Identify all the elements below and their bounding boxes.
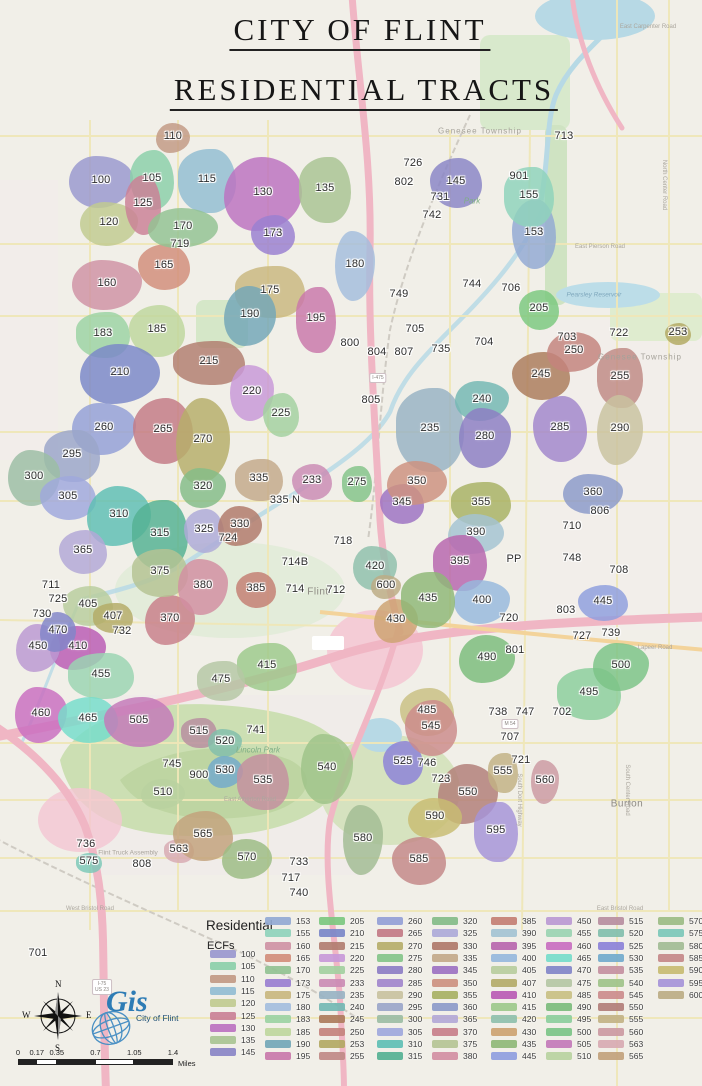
- tract-label-380: 380: [194, 579, 213, 591]
- legend-swatch-265: [377, 929, 403, 937]
- tract-label-275: 275: [348, 476, 367, 488]
- tract-label-460: 460: [32, 707, 51, 719]
- legend-value-255: 255: [350, 1051, 364, 1061]
- tract-label-285: 285: [551, 421, 570, 433]
- tract-label-PP: PP: [506, 553, 521, 565]
- tract-label-701: 701: [29, 947, 48, 959]
- tract-label-570: 570: [238, 851, 257, 863]
- compass-w: W: [22, 1010, 31, 1020]
- tract-label-722: 722: [610, 327, 629, 339]
- legend-swatch-125: [210, 1012, 236, 1020]
- tract-label-747: 747: [516, 706, 535, 718]
- legend-swatch-563: [598, 1040, 624, 1048]
- tract-label-585: 585: [410, 853, 429, 865]
- legend-value-575: 575: [689, 928, 702, 938]
- basemap-label-east-bristol-road: East Bristol Road: [597, 906, 643, 912]
- legend-value-130: 130: [241, 1023, 255, 1033]
- tract-label-807: 807: [395, 346, 414, 358]
- legend-swatch-183: [265, 1015, 291, 1023]
- tract-label-710: 710: [563, 520, 582, 532]
- tract-label-731: 731: [431, 191, 450, 203]
- tract-label-160: 160: [98, 277, 117, 289]
- tract-label-270: 270: [194, 433, 213, 445]
- legend-swatch-505: [546, 1040, 572, 1048]
- legend-value-400: 400: [522, 953, 536, 963]
- legend-value-185: 185: [296, 1027, 310, 1037]
- legend-swatch-260: [377, 917, 403, 925]
- tract-label-535: 535: [254, 774, 273, 786]
- tract-label-530: 530: [216, 764, 235, 776]
- tract-label-705: 705: [406, 323, 425, 335]
- legend-value-345: 345: [463, 965, 477, 975]
- tract-label-738: 738: [489, 706, 508, 718]
- gis-logo: Gis City of Flint: [88, 985, 208, 1055]
- tract-label-745: 745: [163, 758, 182, 770]
- legend-swatch-470: [546, 966, 572, 974]
- tract-label-155: 155: [520, 189, 539, 201]
- tract-label-350: 350: [408, 475, 427, 487]
- legend-value-135: 135: [241, 1035, 255, 1045]
- legend-swatch-555: [598, 1015, 624, 1023]
- legend-swatch-415: [491, 1003, 517, 1011]
- legend-value-270: 270: [408, 941, 422, 951]
- tract-label-707: 707: [501, 731, 520, 743]
- tract-label-250: 250: [565, 344, 584, 356]
- legend-swatch-540: [598, 979, 624, 987]
- legend-value-290: 290: [408, 990, 422, 1000]
- legend-swatch-530: [598, 954, 624, 962]
- basemap-label-genesee-township: Genesee Township: [598, 353, 682, 362]
- legend-value-545: 545: [629, 990, 643, 1000]
- legend-swatch-490: [546, 1003, 572, 1011]
- legend-swatch-205: [319, 917, 345, 925]
- tract-label-135: 135: [316, 182, 335, 194]
- tract-label-253: 253: [669, 326, 688, 338]
- basemap-label-flint: Flint: [307, 587, 328, 598]
- legend-swatch-525: [598, 942, 624, 950]
- basemap-label-park: Park: [464, 197, 480, 206]
- basemap-label-lapeer-road: Lapeer Road: [638, 645, 673, 651]
- legend-value-330: 330: [463, 941, 477, 951]
- tract-label-749: 749: [390, 288, 409, 300]
- legend-value-160: 160: [296, 941, 310, 951]
- legend-swatch-100: [210, 950, 236, 958]
- legend-swatch-225: [319, 966, 345, 974]
- tract-label-525: 525: [394, 755, 413, 767]
- map-title-line1: CITY OF FLINT: [229, 12, 490, 51]
- tract-label-717: 717: [282, 872, 301, 884]
- tract-label-170: 170: [174, 220, 193, 232]
- legend-value-370: 370: [463, 1027, 477, 1037]
- tract-label-736: 736: [77, 838, 96, 850]
- legend-value-100: 100: [241, 949, 255, 959]
- legend-swatch-170: [265, 966, 291, 974]
- legend-swatch-420: [491, 1015, 517, 1023]
- legend-swatch-350: [432, 979, 458, 987]
- legend-swatch-450: [546, 917, 572, 925]
- tract-label-240: 240: [473, 393, 492, 405]
- legend-swatch-153: [265, 917, 291, 925]
- tract-label-711: 711: [42, 579, 60, 591]
- legend-swatch-250: [319, 1028, 345, 1036]
- tract-label-325: 325: [195, 523, 214, 535]
- legend-value-455: 455: [577, 928, 591, 938]
- tract-label-290: 290: [611, 422, 630, 434]
- tract-label-235: 235: [421, 422, 440, 434]
- legend-value-153: 153: [296, 916, 310, 926]
- legend-swatch-320: [432, 917, 458, 925]
- legend-value-465: 465: [577, 953, 591, 963]
- basemap-label-east-pierson-road: East Pierson Road: [575, 244, 625, 250]
- tract-label-345: 345: [393, 496, 412, 508]
- legend-value-490: 490: [577, 1002, 591, 1012]
- legend-value-325: 325: [463, 928, 477, 938]
- legend-value-555: 555: [629, 1014, 643, 1024]
- tract-label-385: 385: [247, 582, 266, 594]
- tract-label-730: 730: [33, 608, 52, 620]
- basemap-label-east-carpenter-road: East Carpenter Road: [620, 24, 676, 30]
- legend-swatch-485: [546, 991, 572, 999]
- tract-label-520: 520: [216, 735, 235, 747]
- legend-value-190: 190: [296, 1039, 310, 1049]
- tract-label-395: 395: [451, 555, 470, 567]
- legend-value-560: 560: [629, 1027, 643, 1037]
- tract-label-575: 575: [80, 855, 99, 867]
- legend-swatch-130: [210, 1024, 236, 1032]
- legend-swatch-600: [658, 991, 684, 999]
- tract-label-495: 495: [580, 686, 599, 698]
- tract-label-375: 375: [151, 565, 170, 577]
- legend-value-295: 295: [408, 1002, 422, 1012]
- tract-label-470: 470: [49, 624, 68, 636]
- map-title-line2: RESIDENTIAL TRACTS: [170, 72, 558, 111]
- tract-label-590: 590: [426, 810, 445, 822]
- legend-swatch-325: [432, 929, 458, 937]
- tract-label-100: 100: [92, 174, 111, 186]
- tract-label-300: 300: [25, 470, 44, 482]
- legend-value-515: 515: [629, 916, 643, 926]
- legend-value-260: 260: [408, 916, 422, 926]
- basemap-label-lincoln-park: Lincoln Park: [236, 746, 280, 755]
- legend-value-390: 390: [522, 928, 536, 938]
- legend-swatch-520: [598, 929, 624, 937]
- legend-swatch-355: [432, 991, 458, 999]
- legend-value-105: 105: [241, 961, 255, 971]
- legend-value-265: 265: [408, 928, 422, 938]
- tract-label-727: 727: [573, 630, 592, 642]
- tract-label-400: 400: [473, 594, 492, 606]
- legend-swatch-270: [377, 942, 403, 950]
- legend-value-410: 410: [522, 990, 536, 1000]
- legend-value-435: 435: [522, 1039, 536, 1049]
- tract-label-335-N: 335 N: [270, 494, 300, 506]
- gis-logo-name: City of Flint: [136, 1013, 179, 1023]
- scale-segment: [18, 1059, 37, 1065]
- legend-swatch-210: [319, 929, 345, 937]
- legend-value-415: 415: [522, 1002, 536, 1012]
- basemap-label-east-atherton-road: East Atherton Road: [224, 797, 276, 803]
- legend-header: Residential: [206, 918, 273, 933]
- legend-value-365: 365: [463, 1014, 477, 1024]
- legend-swatch-345: [432, 966, 458, 974]
- tract-label-515: 515: [190, 725, 209, 737]
- legend-swatch-165: [265, 954, 291, 962]
- legend-swatch-495: [546, 1015, 572, 1023]
- tract-label-808: 808: [133, 858, 152, 870]
- tract-label-801: 801: [506, 644, 525, 656]
- legend-swatch-235: [319, 991, 345, 999]
- tract-label-540: 540: [318, 761, 337, 773]
- legend-value-360: 360: [463, 1002, 477, 1012]
- legend-value-310: 310: [408, 1039, 422, 1049]
- tract-label-800: 800: [341, 337, 360, 349]
- legend-value-315: 315: [408, 1051, 422, 1061]
- tract-label-723: 723: [432, 773, 451, 785]
- legend-value-570: 570: [689, 916, 702, 926]
- legend-value-145: 145: [241, 1047, 255, 1057]
- legend-swatch-375: [432, 1040, 458, 1048]
- tract-label-565: 565: [194, 828, 213, 840]
- legend-value-125: 125: [241, 1011, 255, 1021]
- legend-swatch-500: [546, 1028, 572, 1036]
- legend-value-563: 563: [629, 1039, 643, 1049]
- legend-swatch-380: [432, 1052, 458, 1060]
- basemap-label-north-center-road: North Center Road: [661, 160, 667, 210]
- tract-label-255: 255: [611, 370, 630, 382]
- tract-label-739: 739: [602, 627, 621, 639]
- tract-label-555: 555: [494, 765, 513, 777]
- tract-label-802: 802: [395, 176, 414, 188]
- map-canvas: 1001051101151201251301351451531551601651…: [0, 0, 702, 1086]
- tract-label-455: 455: [92, 668, 111, 680]
- legend-value-550: 550: [629, 1002, 643, 1012]
- legend-value-350: 350: [463, 978, 477, 988]
- legend-value-385: 385: [522, 916, 536, 926]
- legend-value-470: 470: [577, 965, 591, 975]
- tract-label-714: 714: [286, 583, 305, 595]
- legend-value-407: 407: [522, 978, 536, 988]
- tract-label-580: 580: [354, 832, 373, 844]
- tract-label-130: 130: [254, 186, 273, 198]
- legend-swatch-245: [319, 1015, 345, 1023]
- legend-swatch-135: [210, 1036, 236, 1044]
- legend-value-420: 420: [522, 1014, 536, 1024]
- basemap-label-south-dort-highway: South Dort Highway: [516, 773, 522, 826]
- tract-label-706: 706: [502, 282, 521, 294]
- tract-label-450: 450: [29, 640, 48, 652]
- legend-value-205: 205: [350, 916, 364, 926]
- tract-label-265: 265: [154, 423, 173, 435]
- legend-value-250: 250: [350, 1027, 364, 1037]
- legend-swatch-455: [546, 929, 572, 937]
- legend-swatch-400: [491, 954, 517, 962]
- legend-value-300: 300: [408, 1014, 422, 1024]
- legend-value-395: 395: [522, 941, 536, 951]
- legend-value-510: 510: [577, 1051, 591, 1061]
- legend-swatch-300: [377, 1015, 403, 1023]
- tract-label-804: 804: [368, 346, 387, 358]
- tract-label-702: 702: [553, 706, 572, 718]
- legend-value-110: 110: [241, 974, 255, 984]
- scale-tick-0.17: 0.17: [29, 1048, 44, 1057]
- legend-swatch-155: [265, 929, 291, 937]
- scale-segment: [96, 1059, 135, 1065]
- legend-value-120: 120: [241, 998, 255, 1008]
- legend-value-233: 233: [350, 978, 364, 988]
- legend-value-460: 460: [577, 941, 591, 951]
- legend-swatch-185: [265, 1028, 291, 1036]
- legend-swatch-560: [598, 1028, 624, 1036]
- basemap-label-flint-truck-assembly: Flint Truck Assembly: [98, 850, 158, 857]
- blank-label-box: [312, 636, 344, 650]
- tract-label-740: 740: [290, 887, 309, 899]
- legend-swatch-395: [491, 942, 517, 950]
- tract-label-310: 310: [110, 508, 129, 520]
- tract-label-805: 805: [362, 394, 381, 406]
- legend-value-585: 585: [689, 953, 702, 963]
- legend-value-535: 535: [629, 965, 643, 975]
- route-shield-m-54: M 54: [501, 719, 518, 729]
- tract-label-180: 180: [346, 258, 365, 270]
- tract-label-490: 490: [478, 651, 497, 663]
- tract-label-742: 742: [423, 209, 442, 221]
- legend-swatch-575: [658, 929, 684, 937]
- tract-label-315: 315: [151, 527, 170, 539]
- legend-value-180: 180: [296, 1002, 310, 1012]
- scale-segment: [57, 1059, 96, 1065]
- legend-value-595: 595: [689, 978, 702, 988]
- legend-value-495: 495: [577, 1014, 591, 1024]
- legend-swatch-510: [546, 1052, 572, 1060]
- tract-label-190: 190: [241, 308, 260, 320]
- legend-swatch-535: [598, 966, 624, 974]
- tract-label-330: 330: [231, 518, 250, 530]
- legend-value-485: 485: [577, 990, 591, 1000]
- legend-swatch-253: [319, 1040, 345, 1048]
- tract-label-803: 803: [557, 604, 576, 616]
- legend-swatch-290: [377, 991, 403, 999]
- legend-swatch-545: [598, 991, 624, 999]
- tract-label-735: 735: [432, 343, 451, 355]
- legend-swatch-233: [319, 979, 345, 987]
- tract-label-365: 365: [74, 544, 93, 556]
- legend-value-170: 170: [296, 965, 310, 975]
- tract-label-280: 280: [476, 430, 495, 442]
- tract-label-712: 712: [327, 584, 346, 596]
- legend-swatch-105: [210, 962, 236, 970]
- legend-value-175: 175: [296, 990, 310, 1000]
- tract-label-714B: 714B: [282, 556, 309, 568]
- legend-swatch-240: [319, 1003, 345, 1011]
- tract-label-430: 430: [387, 613, 406, 625]
- legend-swatch-280: [377, 966, 403, 974]
- scale-tick-0: 0: [16, 1048, 20, 1057]
- legend-swatch-585: [658, 954, 684, 962]
- tract-label-295: 295: [63, 448, 82, 460]
- tract-label-475: 475: [212, 673, 231, 685]
- scale-tick-0.35: 0.35: [49, 1048, 64, 1057]
- legend-swatch-465: [546, 954, 572, 962]
- legend-swatch-445: [491, 1052, 517, 1060]
- legend-swatch-515: [598, 917, 624, 925]
- tract-label-175: 175: [261, 284, 280, 296]
- legend-value-155: 155: [296, 928, 310, 938]
- legend-swatch-335: [432, 954, 458, 962]
- tract-label-704: 704: [475, 336, 494, 348]
- legend-value-600: 600: [689, 990, 702, 1000]
- legend-swatch-390: [491, 929, 517, 937]
- scale-unit: Miles: [178, 1059, 196, 1068]
- tract-label-720: 720: [500, 612, 519, 624]
- legend-swatch-160: [265, 942, 291, 950]
- legend-value-225: 225: [350, 965, 364, 975]
- legend-value-375: 375: [463, 1039, 477, 1049]
- legend-swatch-595: [658, 979, 684, 987]
- tract-label-900: 900: [190, 769, 209, 781]
- tract-label-110: 110: [164, 130, 182, 142]
- legend-value-445: 445: [522, 1051, 536, 1061]
- compass-n: N: [55, 979, 62, 989]
- legend-swatch-215: [319, 942, 345, 950]
- tract-label-746: 746: [418, 757, 437, 769]
- tract-label-703: 703: [558, 331, 577, 343]
- legend-value-475: 475: [577, 978, 591, 988]
- tract-label-225: 225: [272, 407, 291, 419]
- legend-swatch-115: [210, 987, 236, 995]
- legend-swatch-570: [658, 917, 684, 925]
- tract-label-724: 724: [219, 532, 238, 544]
- tract-label-320: 320: [194, 480, 213, 492]
- legend-swatch-565: [598, 1052, 624, 1060]
- legend-value-530: 530: [629, 953, 643, 963]
- tract-label-741: 741: [247, 724, 266, 736]
- route-shield-i-475: I-475: [369, 373, 386, 383]
- legend-value-355: 355: [463, 990, 477, 1000]
- tract-label-173: 173: [264, 227, 283, 239]
- legend-value-500: 500: [577, 1027, 591, 1037]
- tract-label-726: 726: [404, 157, 423, 169]
- tract-label-233: 233: [303, 474, 322, 486]
- legend-value-275: 275: [408, 953, 422, 963]
- legend-swatch-110: [210, 975, 236, 983]
- tract-label-415: 415: [258, 659, 277, 671]
- tract-label-245: 245: [532, 368, 551, 380]
- tract-label-748: 748: [563, 552, 582, 564]
- legend-swatch-120: [210, 999, 236, 1007]
- tract-label-115: 115: [198, 173, 216, 185]
- tract-label-185: 185: [148, 323, 167, 335]
- legend-value-305: 305: [408, 1027, 422, 1037]
- legend-value-220: 220: [350, 953, 364, 963]
- tract-label-500: 500: [612, 659, 631, 671]
- tract-label-215: 215: [200, 355, 219, 367]
- tract-label-145: 145: [447, 175, 466, 187]
- legend-value-280: 280: [408, 965, 422, 975]
- legend-value-540: 540: [629, 978, 643, 988]
- legend-value-565: 565: [629, 1051, 643, 1061]
- legend-value-380: 380: [463, 1051, 477, 1061]
- tract-label-407: 407: [104, 610, 123, 622]
- tract-label-713: 713: [555, 130, 574, 142]
- tract-label-390: 390: [467, 526, 486, 538]
- legend-value-405: 405: [522, 965, 536, 975]
- tract-label-563: 563: [170, 843, 189, 855]
- legend-value-210: 210: [350, 928, 364, 938]
- tract-label-744: 744: [463, 278, 482, 290]
- legend-swatch-330: [432, 942, 458, 950]
- tract-label-153: 153: [525, 226, 544, 238]
- legend-value-240: 240: [350, 1002, 364, 1012]
